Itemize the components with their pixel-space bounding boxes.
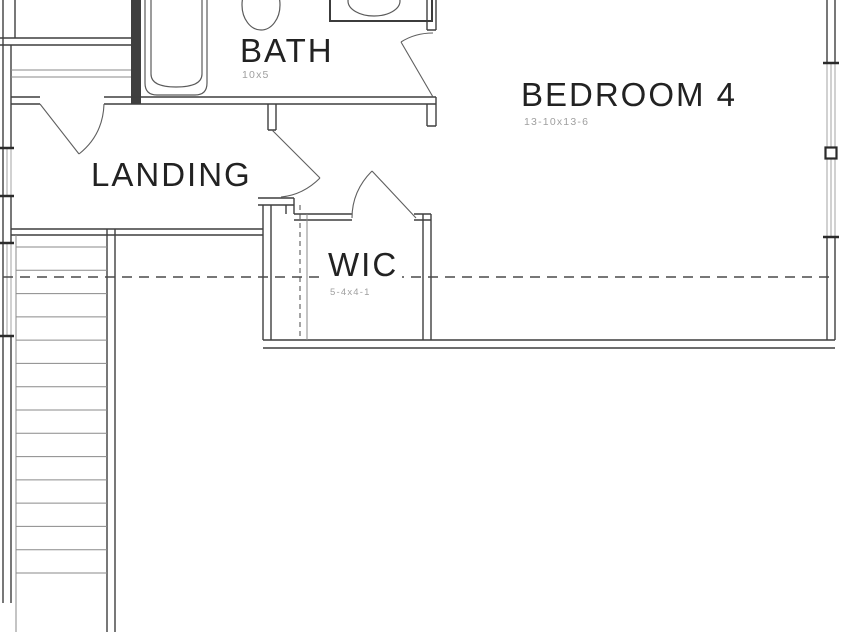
bath-label: BATH xyxy=(240,34,330,67)
stair-window-glass xyxy=(7,243,11,336)
closet-door xyxy=(40,104,104,154)
landing-label: LANDING xyxy=(91,158,241,191)
toilet xyxy=(242,0,280,30)
left-wall xyxy=(3,0,15,603)
wic-label: WIC xyxy=(322,248,402,281)
bath-door xyxy=(401,33,433,97)
bedroom-door xyxy=(272,130,320,197)
vanity-counter xyxy=(330,0,432,21)
tub-wall xyxy=(131,0,141,104)
wic-dimensions: 5-4x4-1 xyxy=(330,288,371,298)
sink xyxy=(348,0,400,16)
stairs xyxy=(16,235,107,632)
bath-bottom-wall xyxy=(11,97,436,126)
landing-bottom-wall xyxy=(11,229,263,235)
vestibule-wall xyxy=(268,104,276,130)
closet-shelves xyxy=(11,70,131,77)
bedroom-window-mullion xyxy=(826,148,837,159)
stairwell-right-wall xyxy=(107,229,115,632)
wic-door xyxy=(352,171,416,218)
bottom-wall xyxy=(263,340,835,348)
floor-plan: BATH 10x5 BEDROOM 4 13-10x13-6 LANDING W… xyxy=(0,0,843,632)
wic-left-wall xyxy=(258,198,294,340)
bath-dimensions: 10x5 xyxy=(242,70,270,81)
wic-top-wall xyxy=(294,214,431,220)
landing-window-glass xyxy=(7,148,11,196)
bedroom4-label: BEDROOM 4 xyxy=(521,78,731,111)
bedroom4-dimensions: 13-10x13-6 xyxy=(524,117,589,128)
stairs-treads xyxy=(16,247,107,573)
bathtub xyxy=(145,0,207,95)
top-left-wall xyxy=(0,38,141,45)
